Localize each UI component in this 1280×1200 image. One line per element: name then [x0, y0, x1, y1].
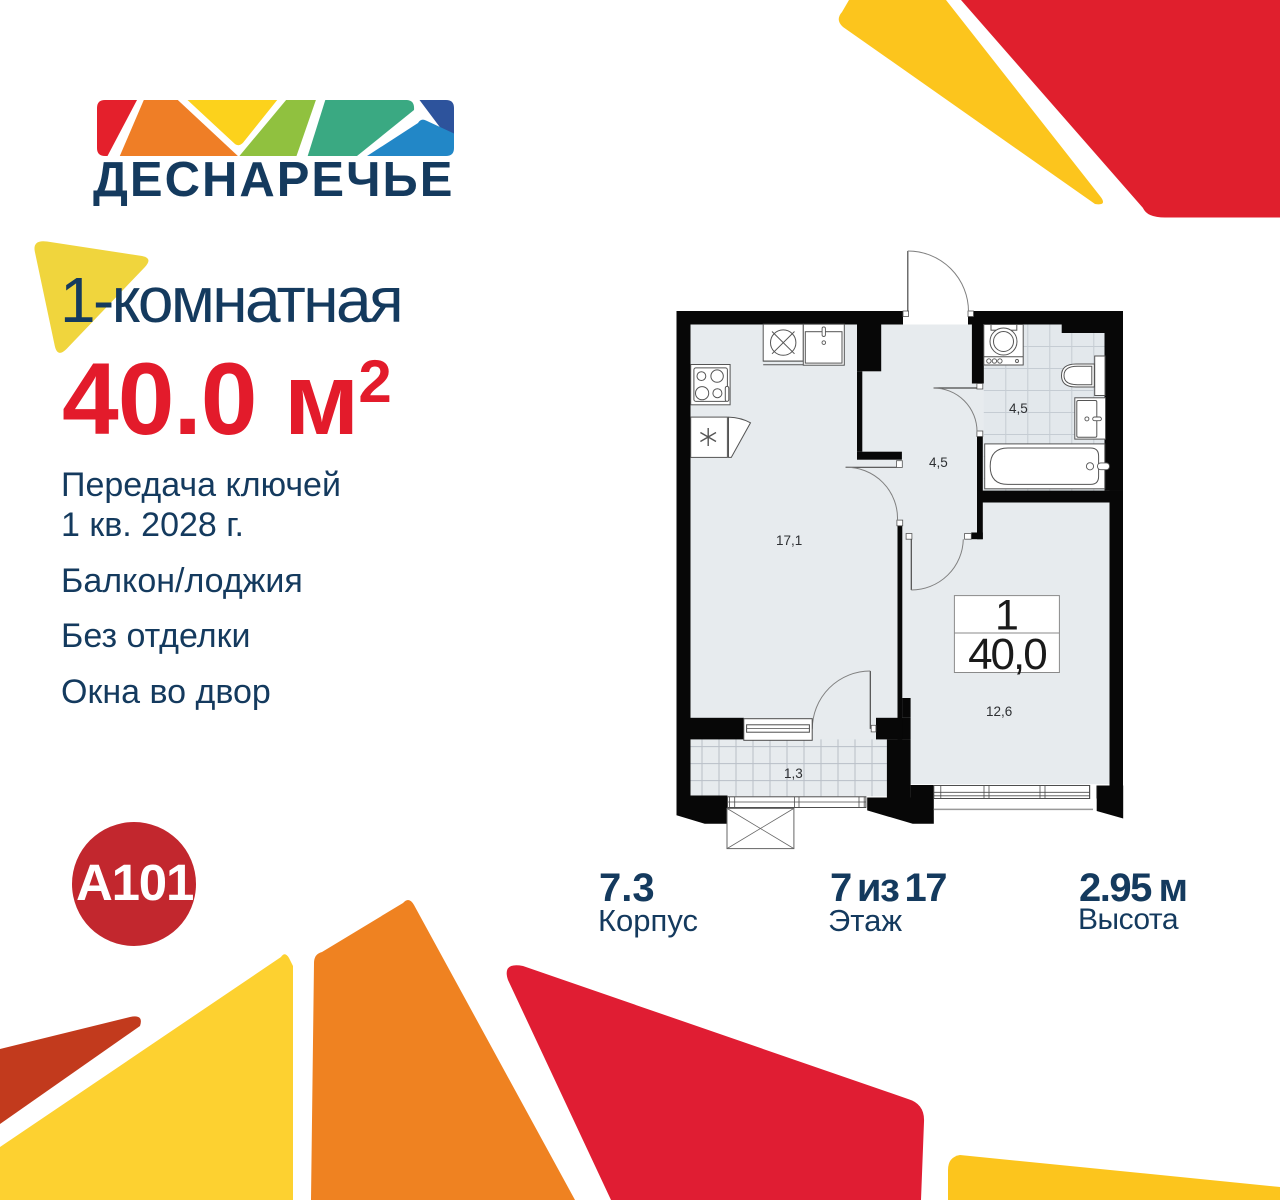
- svg-text:4,5: 4,5: [1009, 401, 1028, 416]
- svg-text:17,1: 17,1: [776, 533, 802, 548]
- svg-text:1,3: 1,3: [784, 766, 803, 781]
- svg-text:4,5: 4,5: [929, 455, 948, 470]
- svg-text:12,6: 12,6: [986, 704, 1012, 719]
- svg-text:40,0: 40,0: [968, 630, 1046, 679]
